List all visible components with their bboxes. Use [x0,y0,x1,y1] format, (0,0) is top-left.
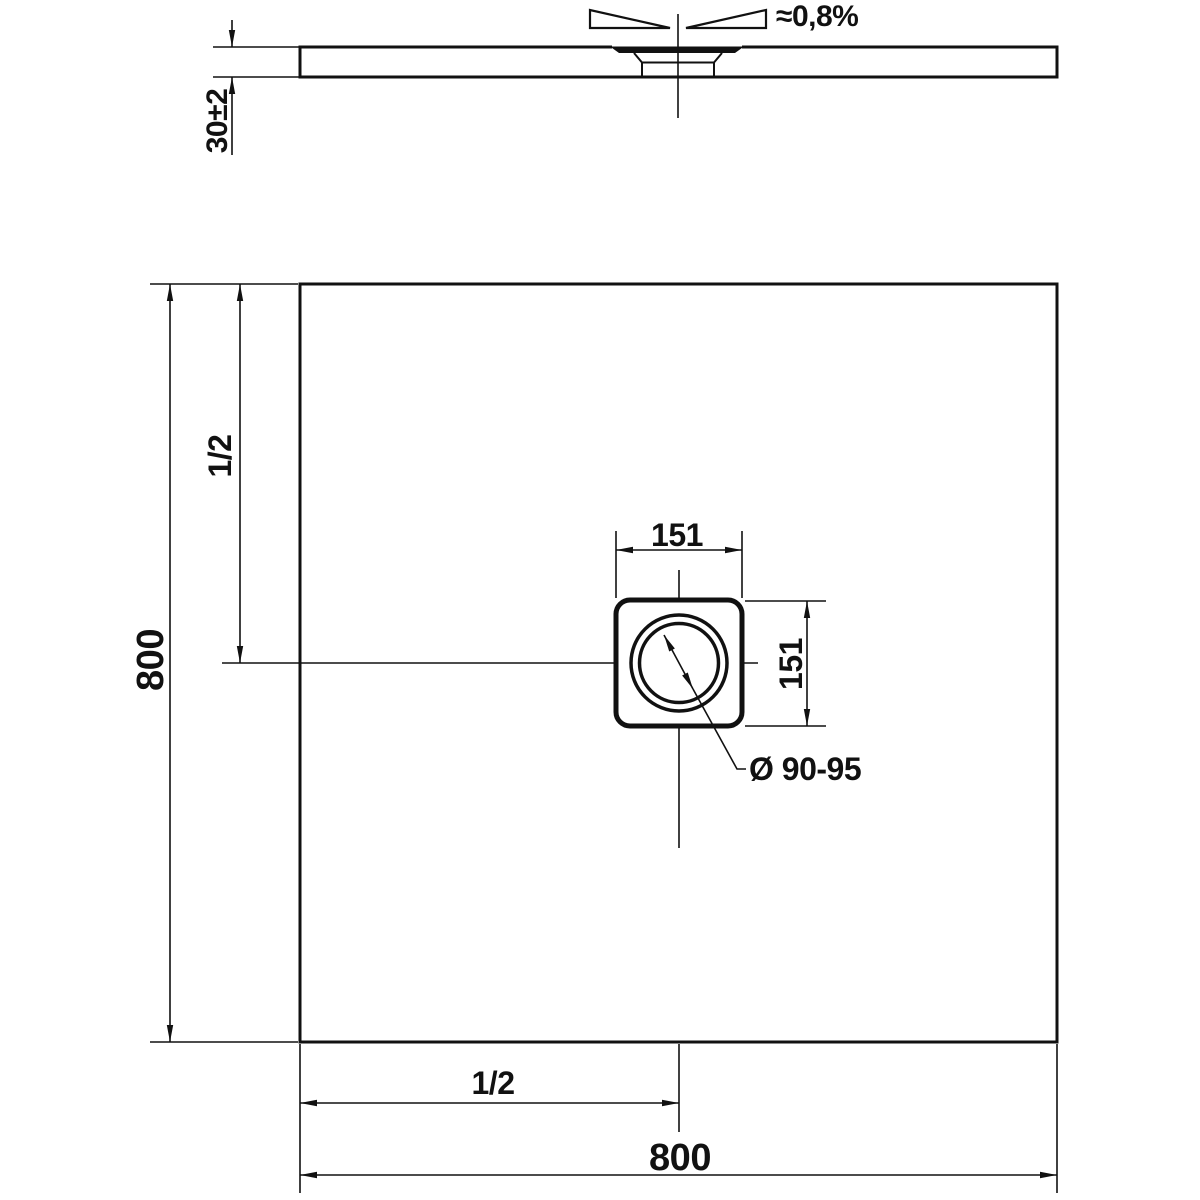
height-label: 800 [130,629,172,691]
thickness-dimension: 30±2 [201,20,299,155]
half-width-dimension: 1/2 [300,1065,679,1103]
width-dimension: 800 [300,1137,1057,1179]
half-height-dimension: 1/2 [202,284,240,663]
drain-diameter-label: Ø 90-95 [749,751,861,787]
slope-wedge-right [686,10,766,28]
half-height-label: 1/2 [202,435,238,478]
drain-height-label: 151 [773,638,809,690]
side-view: ≈0,8% 30±2 [201,0,1057,155]
drain-flange [610,47,744,54]
drain-width-label: 151 [651,517,703,553]
slope-label: ≈0,8% [776,0,858,33]
thickness-label: 30±2 [201,89,234,154]
slope-wedge-left [590,10,670,28]
drawing-svg: ≈0,8% 30±2 151 [0,0,1200,1200]
technical-drawing-shower-tray: ≈0,8% 30±2 151 [0,0,1200,1200]
plan-view: 151 151 Ø 90-95 800 1/2 [130,284,1057,1193]
half-width-label: 1/2 [472,1065,515,1101]
width-label: 800 [649,1137,711,1179]
